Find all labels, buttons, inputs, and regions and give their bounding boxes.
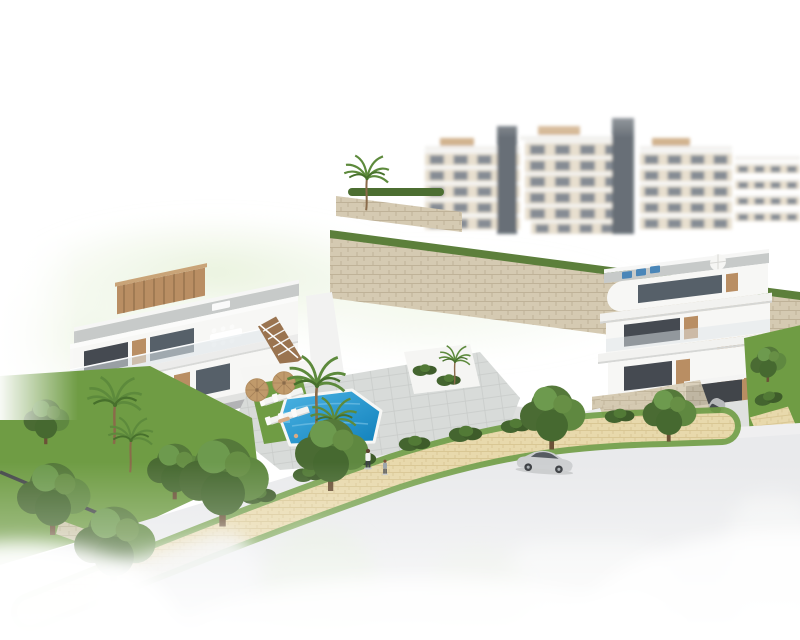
roof-pergola	[652, 138, 690, 146]
swimmer	[294, 434, 298, 438]
roof-pergola	[440, 138, 474, 146]
parasol	[273, 372, 296, 395]
architectural-render	[0, 0, 800, 640]
render-canvas	[0, 0, 800, 640]
apartment-tower-4	[735, 156, 800, 221]
top-fade	[0, 0, 800, 138]
wall-hedge	[348, 188, 444, 196]
apartment-tower-3	[640, 138, 732, 229]
left-fade	[0, 0, 78, 420]
stair-core	[497, 126, 517, 234]
parasol	[246, 379, 269, 402]
